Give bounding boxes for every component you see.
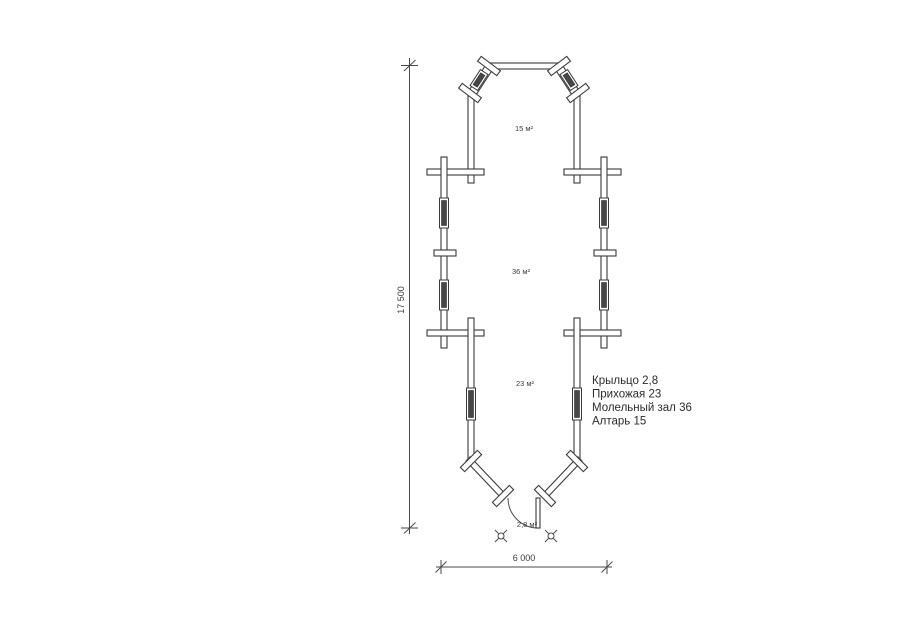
horizontal-dimension: 6 000 — [436, 553, 613, 574]
floor-plan-canvas: 17 500 6 000 — [0, 0, 900, 636]
legend-line-entry: Прихожая 23 — [592, 389, 661, 401]
area-label-entry-hall: 23 м² — [516, 379, 535, 388]
area-label-altar: 15 м² — [515, 124, 534, 133]
area-label-prayer-hall: 36 м² — [512, 267, 531, 276]
legend-line-altar: Алтарь 15 — [592, 416, 646, 428]
porch-column-right — [545, 530, 557, 542]
vertical-dimension: 17 500 — [396, 58, 418, 534]
step-wall-bottom-left — [427, 330, 484, 336]
dimension-length-label: 17 500 — [396, 286, 406, 314]
step-wall-bottom-right — [564, 330, 621, 336]
windows — [440, 70, 609, 420]
window-entry-right — [573, 388, 582, 420]
step-wall-top-right — [564, 169, 621, 175]
legend-line-porch: Крыльцо 2,8 — [592, 375, 658, 387]
window-hall-left-2 — [440, 280, 449, 310]
room-legend: Крыльцо 2,8 Прихожая 23 Молельный зал 36… — [592, 375, 692, 428]
floor-plan-drawing: 17 500 6 000 — [0, 0, 900, 636]
porch-column-left — [495, 530, 507, 542]
window-hall-right-2 — [600, 280, 609, 310]
tab-hall-mid-left — [434, 250, 456, 256]
altar-top-wall — [488, 63, 560, 69]
window-hall-right-1 — [600, 198, 609, 228]
step-wall-top-left — [427, 169, 484, 175]
legend-line-hall: Молельный зал 36 — [592, 402, 692, 414]
tab-hall-mid-right — [594, 250, 616, 256]
window-hall-left-1 — [440, 198, 449, 228]
dimension-width-label: 6 000 — [513, 553, 536, 563]
area-label-porch: 2,8 м² — [517, 520, 538, 529]
window-entry-left — [467, 388, 476, 420]
